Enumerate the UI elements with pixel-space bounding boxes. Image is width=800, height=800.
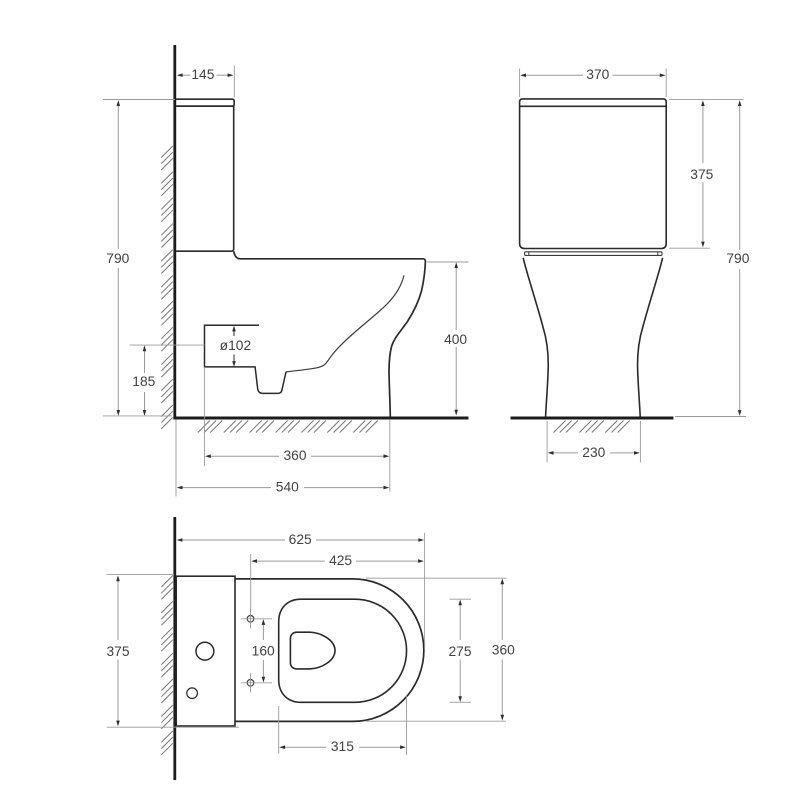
svg-text:625: 625 [289, 532, 312, 547]
svg-text:315: 315 [331, 739, 354, 754]
svg-text:400: 400 [444, 332, 467, 347]
svg-text:275: 275 [448, 644, 471, 659]
svg-text:ø102: ø102 [220, 338, 251, 353]
svg-text:360: 360 [492, 643, 515, 658]
svg-text:185: 185 [132, 374, 155, 389]
svg-text:375: 375 [106, 644, 129, 659]
svg-text:375: 375 [690, 167, 713, 182]
svg-text:360: 360 [283, 448, 306, 463]
svg-text:540: 540 [276, 480, 299, 495]
svg-text:790: 790 [106, 251, 129, 266]
svg-text:790: 790 [726, 251, 749, 266]
svg-text:145: 145 [191, 67, 214, 82]
svg-text:230: 230 [582, 445, 605, 460]
svg-text:425: 425 [329, 553, 352, 568]
svg-text:160: 160 [252, 643, 275, 658]
svg-text:370: 370 [586, 67, 609, 82]
